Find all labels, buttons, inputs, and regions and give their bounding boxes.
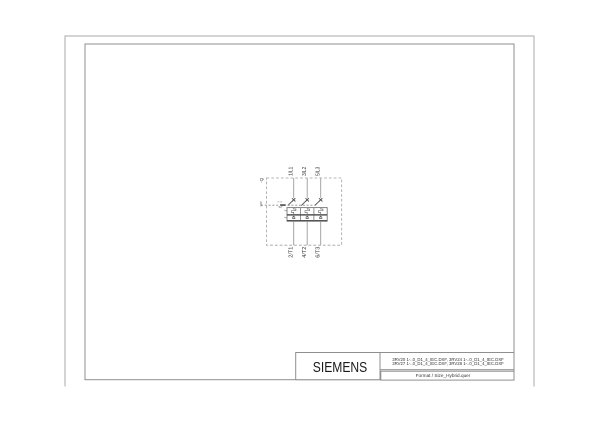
svg-text:SIEMENS: SIEMENS bbox=[313, 360, 368, 376]
svg-text:6/T3: 6/T3 bbox=[316, 247, 322, 258]
svg-text:5/L3: 5/L3 bbox=[316, 167, 322, 176]
svg-text:2/T1: 2/T1 bbox=[289, 247, 295, 258]
svg-text:-Q: -Q bbox=[259, 177, 264, 182]
svg-text:1/L1: 1/L1 bbox=[289, 167, 295, 176]
svg-text:Format / Size_Hybrid.quer: Format / Size_Hybrid.quer bbox=[416, 373, 471, 378]
svg-text:3/L2: 3/L2 bbox=[302, 167, 308, 176]
svg-text:4/T2: 4/T2 bbox=[302, 247, 308, 258]
svg-text:3RV27 1-..0_D1_4_IEC.DXF, 3RV2: 3RV27 1-..0_D1_4_IEC.DXF, 3RV28 1-..0_D1… bbox=[392, 361, 504, 366]
